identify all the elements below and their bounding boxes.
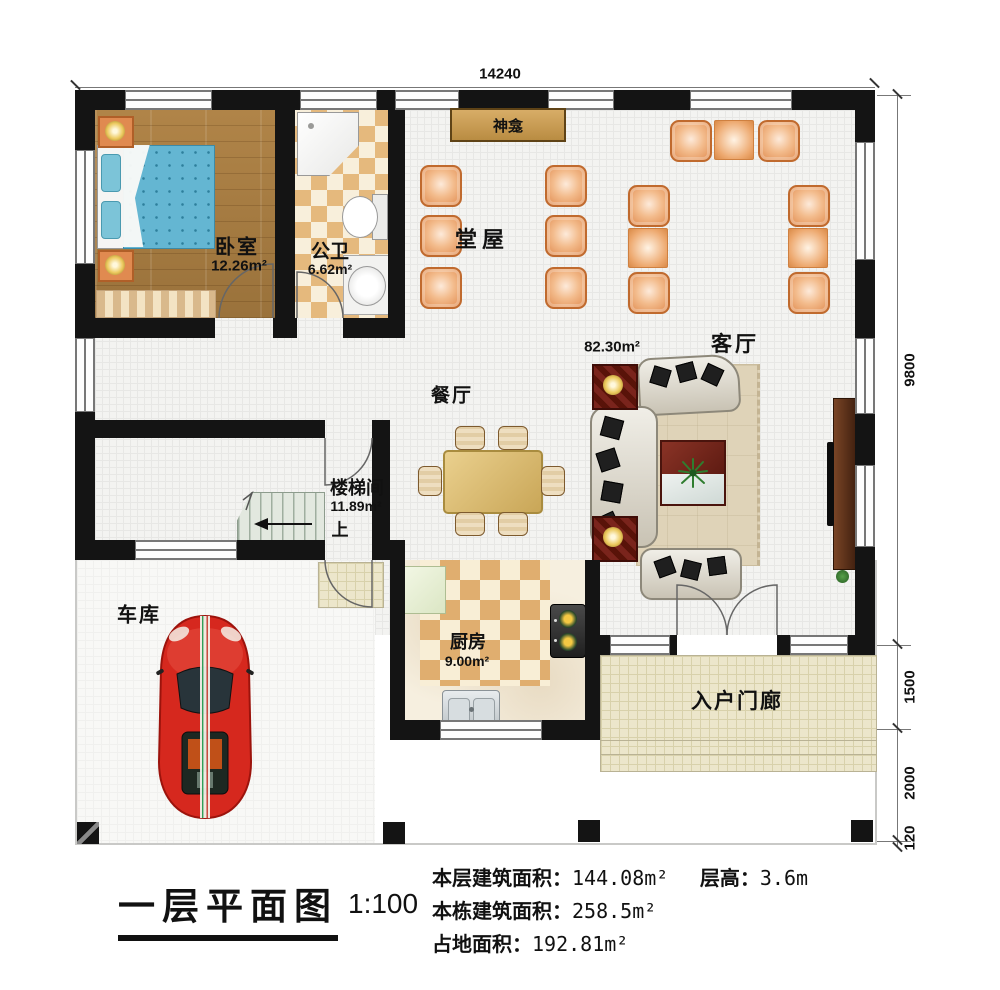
dim-top-value: 14240 (479, 66, 521, 83)
window (790, 635, 848, 655)
garage-label: 车库 (117, 599, 161, 628)
stats-line-1: 本层建筑面积：144.08m² 层高：3.6m (432, 862, 808, 891)
shrine-altar: 神龛 (450, 108, 566, 142)
hall-chair (628, 185, 670, 227)
porch-step-line (601, 740, 876, 741)
shower-drain-icon (308, 123, 314, 129)
porch-label: 入户门廊 (691, 685, 783, 715)
stats-line-2: 本栋建筑面积：258.5m² (432, 895, 656, 924)
dining-chair (498, 512, 528, 536)
pillar (851, 820, 873, 842)
dining-chair (498, 426, 528, 450)
stat-building-area-value: 258.5m² (572, 899, 656, 923)
lamp-icon (603, 375, 623, 395)
living-label: 客厅 (711, 328, 759, 358)
bed-pillow (101, 201, 121, 239)
dim-ext (877, 95, 911, 96)
tea-table (628, 228, 668, 268)
stairwell-area: 11.89m² (330, 498, 381, 514)
window (610, 635, 670, 655)
dining-table (443, 450, 543, 514)
kitchen-area: 9.00m² (445, 653, 489, 669)
hall-chair (545, 267, 587, 309)
tv-screen (827, 442, 834, 526)
dining-chair (455, 512, 485, 536)
page-title: 一层平面图 (118, 876, 338, 941)
stove-knob-icon (554, 619, 557, 622)
hall-chair (788, 272, 830, 314)
sports-car (150, 612, 260, 822)
plant-icon (676, 456, 710, 490)
stat-building-area-label: 本栋建筑面积： (432, 901, 572, 923)
wall-kitchen-east (585, 560, 600, 740)
hall-chair (545, 165, 587, 207)
hall-chair (670, 120, 712, 162)
window (135, 540, 237, 560)
side-table (592, 364, 638, 410)
tea-table (714, 120, 754, 160)
coffee-table (660, 440, 726, 506)
faucet-icon (469, 707, 474, 712)
fridge (404, 566, 446, 614)
floor-plan: 神龛 卧室 12.26m² 公卫 6.62m² 堂屋 82.30m² 客厅 餐厅… (0, 0, 1000, 990)
sofa-pillow (675, 361, 697, 383)
small-plant-icon (836, 570, 849, 583)
bathroom-area: 6.62m² (308, 261, 352, 277)
stat-floor-area-label: 本层建筑面积： (432, 868, 572, 890)
dim-right-1500: 1500 (902, 670, 919, 703)
hall-label: 堂屋 (455, 222, 509, 254)
living-area: 82.30m² (584, 339, 640, 356)
window (855, 465, 875, 547)
sofa-pillow (600, 416, 624, 440)
window (300, 90, 377, 110)
hall-chair (628, 272, 670, 314)
stat-floor-area-value: 144.08m² (572, 866, 668, 890)
nightstand (98, 116, 134, 148)
burner-icon (559, 633, 577, 651)
wall-bedroom-east (275, 110, 295, 318)
sink-basin (348, 266, 386, 306)
dining-chair (418, 466, 442, 496)
pillar (383, 822, 405, 844)
dim-right-120: 120 (902, 825, 919, 850)
dim-ext (877, 645, 911, 646)
wall-kitchen-west (390, 560, 405, 740)
window (548, 90, 614, 110)
window (75, 150, 95, 264)
lamp-icon (105, 255, 125, 275)
tea-table (788, 228, 828, 268)
window (855, 338, 875, 414)
dim-right-9800: 9800 (902, 353, 919, 386)
dim-line-right (897, 95, 898, 848)
dining-chair (541, 466, 565, 496)
shrine-label: 神龛 (493, 115, 523, 136)
window (395, 90, 459, 110)
wall-bath-east (388, 110, 405, 318)
wall-stair-north (95, 420, 325, 438)
bed-pillow (101, 154, 121, 192)
sofa-pillow (707, 556, 727, 576)
hall-chair (420, 267, 462, 309)
stat-footprint-label: 占地面积： (432, 934, 532, 956)
dim-tick (70, 80, 81, 91)
wall-bedroom-south (75, 318, 215, 338)
stats-line-3: 占地面积：192.81m² (432, 928, 628, 957)
title-block: 一层平面图 1:100 本层建筑面积：144.08m² 层高：3.6m 本栋建筑… (0, 852, 1000, 990)
window (440, 720, 542, 740)
sofa-pillow (649, 365, 671, 387)
sofa-pillow (653, 555, 676, 578)
toilet-bowl (342, 196, 378, 238)
wall-south-west (372, 540, 405, 560)
nightstand (98, 250, 134, 282)
bathroom-label: 公卫 (311, 237, 349, 264)
stairwell-up-label: 上 (332, 516, 349, 541)
dining-label: 餐厅 (431, 381, 473, 408)
burner-icon (559, 610, 577, 628)
hall-chair (758, 120, 800, 162)
bedroom-rug (96, 290, 216, 318)
stove-knob-icon (554, 639, 557, 642)
hall-chair (420, 165, 462, 207)
lamp-icon (603, 527, 623, 547)
stat-height-value: 3.6m (760, 866, 808, 890)
side-table (592, 516, 638, 562)
sofa-pillow (595, 447, 620, 472)
window (855, 142, 875, 260)
bedroom-label: 卧室 (215, 231, 259, 260)
window (75, 338, 95, 412)
stat-footprint-value: 192.81m² (532, 932, 628, 956)
sofa-pillow (701, 363, 725, 387)
tv-cabinet (833, 398, 857, 570)
dining-chair (455, 426, 485, 450)
wall-bedroom-south (273, 318, 297, 338)
hall-chair (788, 185, 830, 227)
side-door-step (318, 562, 384, 608)
sofa-top (637, 353, 742, 416)
hall-chair (545, 215, 587, 257)
pillar (578, 820, 600, 842)
dim-ext (877, 729, 911, 730)
sofa-pillow (680, 559, 702, 581)
kitchen-label: 厨房 (450, 628, 486, 654)
window (690, 90, 792, 110)
bedroom-area: 12.26m² (211, 258, 267, 275)
porch-step-line (601, 754, 876, 755)
sofa-pillow (600, 480, 623, 503)
toilet (342, 192, 388, 242)
scale-label: 1:100 (348, 888, 418, 920)
window (125, 90, 212, 110)
bed (97, 145, 213, 247)
wall-bath-south (343, 318, 405, 338)
dim-right-2000: 2000 (902, 766, 919, 799)
stat-height-label: 层高： (700, 868, 760, 890)
stove (550, 604, 586, 658)
dim-line-top (75, 87, 875, 88)
lamp-icon (105, 121, 125, 141)
stairwell-label: 楼梯间 (330, 474, 384, 500)
sofa-bottom (640, 548, 742, 600)
pillar (77, 822, 99, 844)
